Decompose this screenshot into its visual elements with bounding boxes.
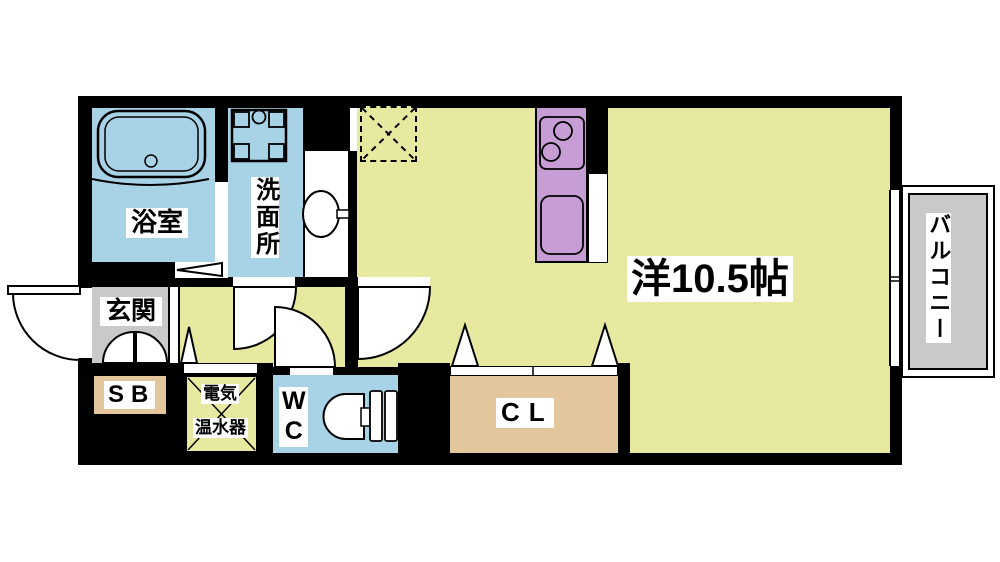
washer-pan-corner: [234, 112, 249, 127]
heater-label-line1: 電気: [201, 384, 239, 404]
washer-pan-corner: [269, 144, 284, 159]
entrance-door-swing-icon: [13, 294, 80, 360]
burner-icon: [542, 143, 560, 161]
washer-pan-corner: [269, 112, 284, 127]
main-room-label: 洋10.5帖: [627, 256, 793, 302]
closet-label: CL: [496, 398, 554, 428]
shoebox-door-right-icon: [136, 332, 167, 363]
shoebox-label: SB: [104, 381, 155, 409]
toilet-tank-icon: [370, 391, 382, 441]
stove-icon: [540, 117, 584, 169]
shoebox-door-left-icon: [103, 332, 134, 363]
washroom-label: 洗面所: [251, 177, 279, 258]
bath-label: 浴室: [126, 208, 188, 238]
toilet-tank-icon: [385, 391, 397, 441]
closet-folding-door-right-icon: [592, 325, 618, 366]
bathtub-drain-icon: [145, 155, 157, 167]
closet-folding-door-left-icon: [452, 325, 478, 366]
toilet-icon: [324, 394, 365, 439]
balcony-label: バルコニー: [926, 213, 951, 343]
heater-folding-door-icon: [181, 327, 197, 363]
entrance-door-leaf-icon: [8, 286, 80, 294]
kitchen-sink-icon: [541, 196, 583, 254]
toilet-flush-icon: [361, 408, 370, 426]
basin-tap-icon: [337, 210, 349, 218]
symbols-layer: [0, 0, 1000, 562]
bathtub-edge-line: [92, 179, 209, 185]
washer-pan-corner: [234, 144, 249, 159]
floor-plan: 浴室 洗面所 玄関 SB 電気 温水器 WC CL 洋10.5帖 バルコニー: [0, 0, 1000, 562]
main-door-swing-icon: [358, 287, 430, 359]
wash-basin-icon: [303, 191, 339, 237]
wc-door-swing-icon: [275, 307, 335, 367]
bath-folding-door-icon: [177, 263, 222, 276]
entrance-label: 玄関: [100, 297, 162, 326]
heater-label-line2: 温水器: [193, 418, 248, 438]
washer-faucet-icon: [253, 111, 266, 124]
wc-label: WC: [279, 387, 308, 447]
burner-icon: [554, 122, 572, 140]
